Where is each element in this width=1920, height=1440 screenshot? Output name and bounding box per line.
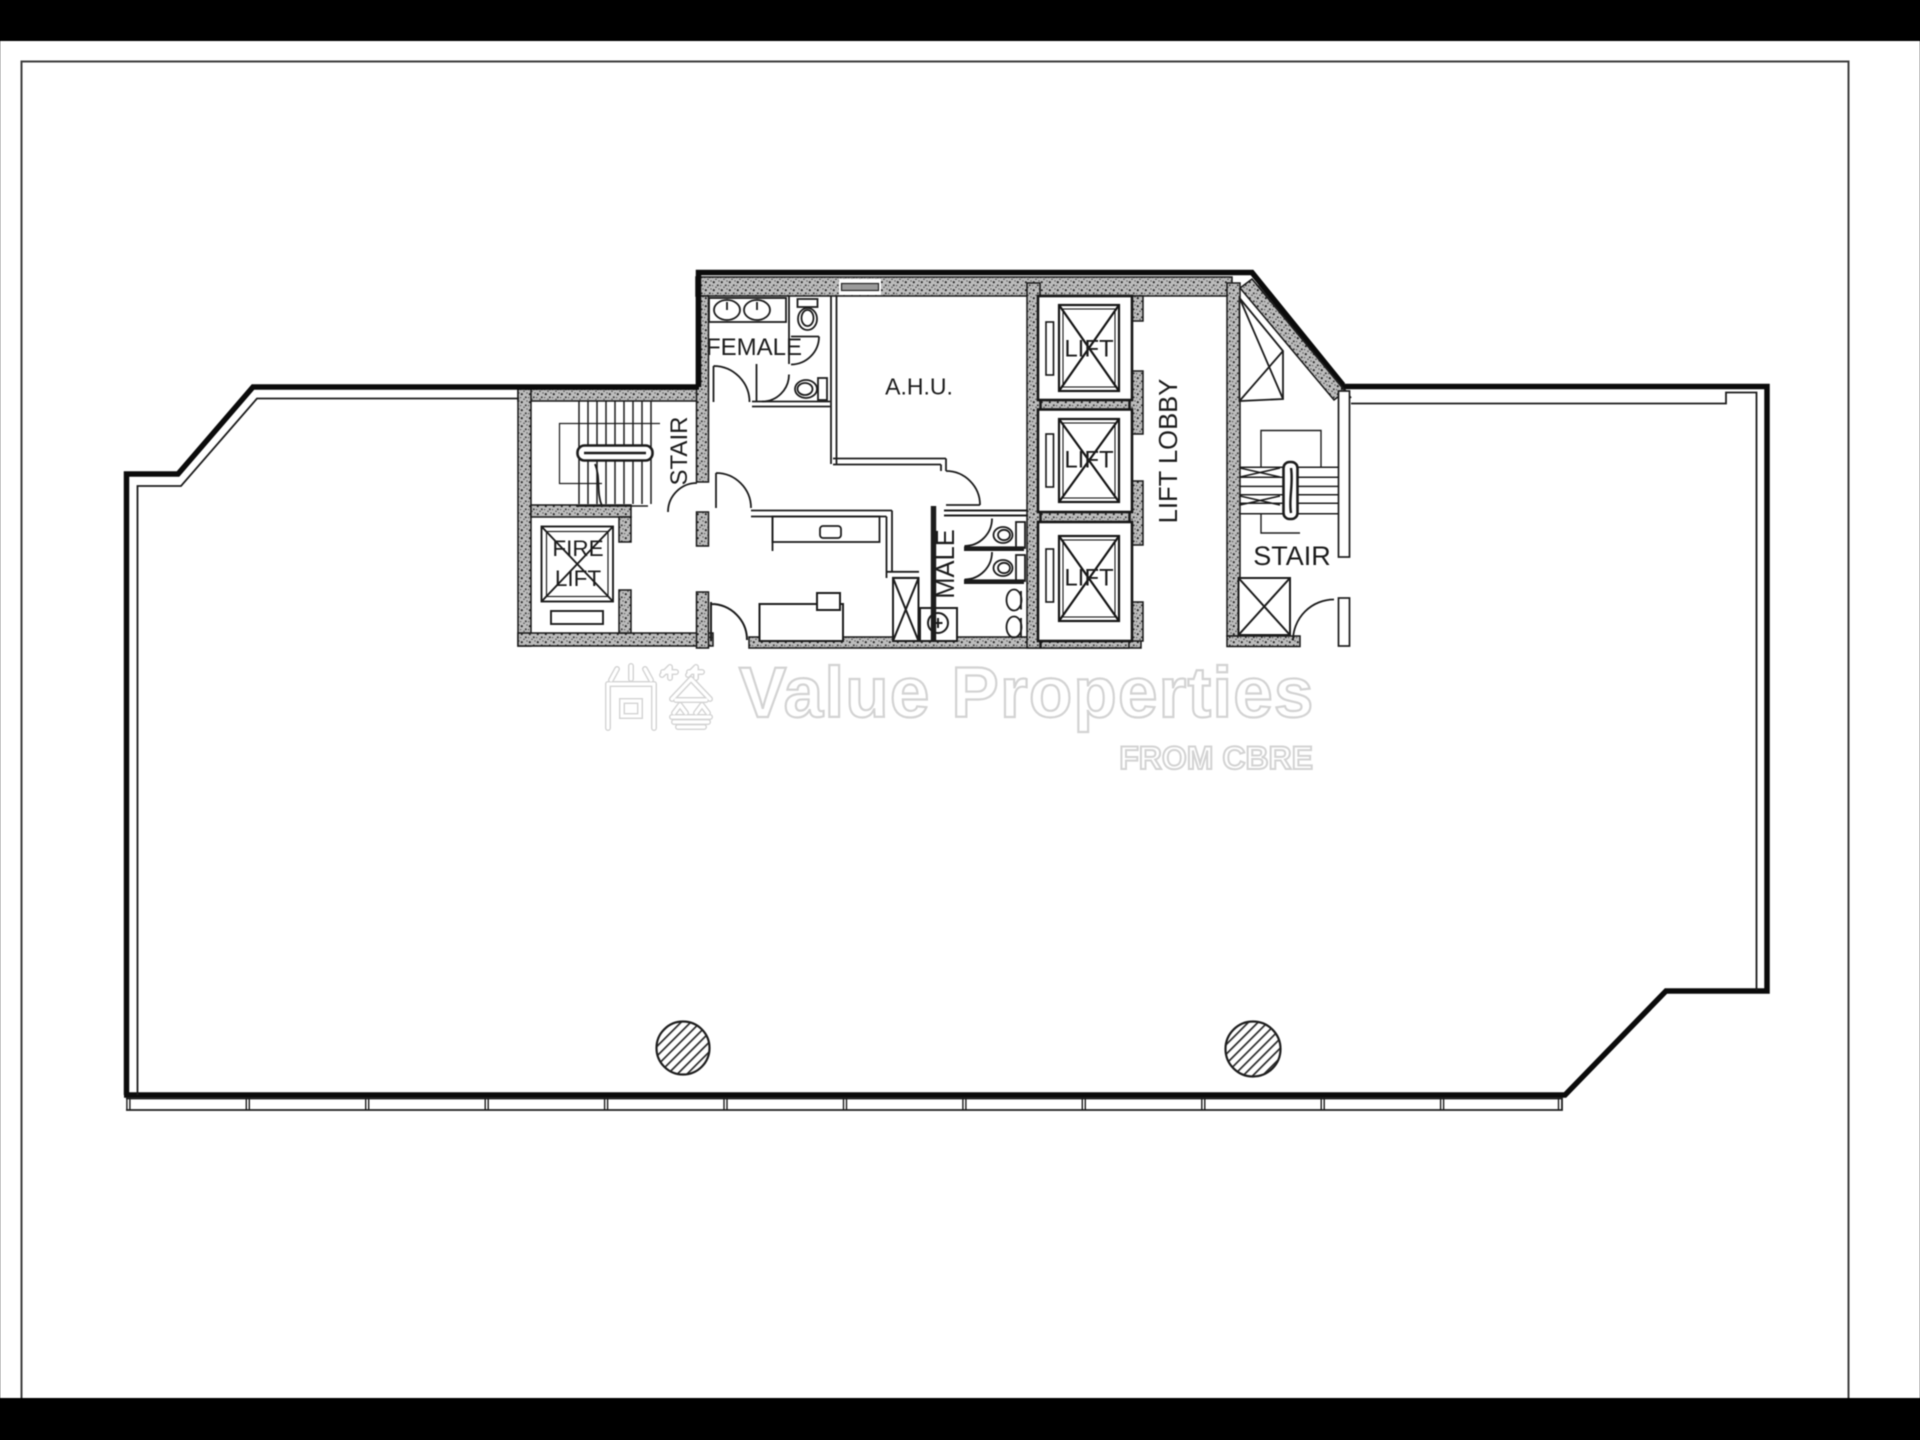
svg-text:LIFT: LIFT xyxy=(1064,447,1114,474)
svg-text:FROM CBRE: FROM CBRE xyxy=(1119,740,1313,776)
svg-text:FEMALE: FEMALE xyxy=(706,334,802,361)
svg-text:STAIR: STAIR xyxy=(1253,541,1331,571)
svg-text:STAIR: STAIR xyxy=(666,417,693,486)
svg-text:LIFT: LIFT xyxy=(1064,336,1114,363)
svg-text:Value Properties: Value Properties xyxy=(739,654,1315,733)
svg-text:FIRE: FIRE xyxy=(552,536,603,561)
svg-text:LIFT: LIFT xyxy=(1064,565,1114,592)
svg-text:LIFT LOBBY: LIFT LOBBY xyxy=(1155,379,1183,524)
svg-text:MALE: MALE xyxy=(932,529,960,598)
svg-text:LIFT: LIFT xyxy=(555,566,602,591)
svg-text:A.H.U.: A.H.U. xyxy=(885,374,953,400)
